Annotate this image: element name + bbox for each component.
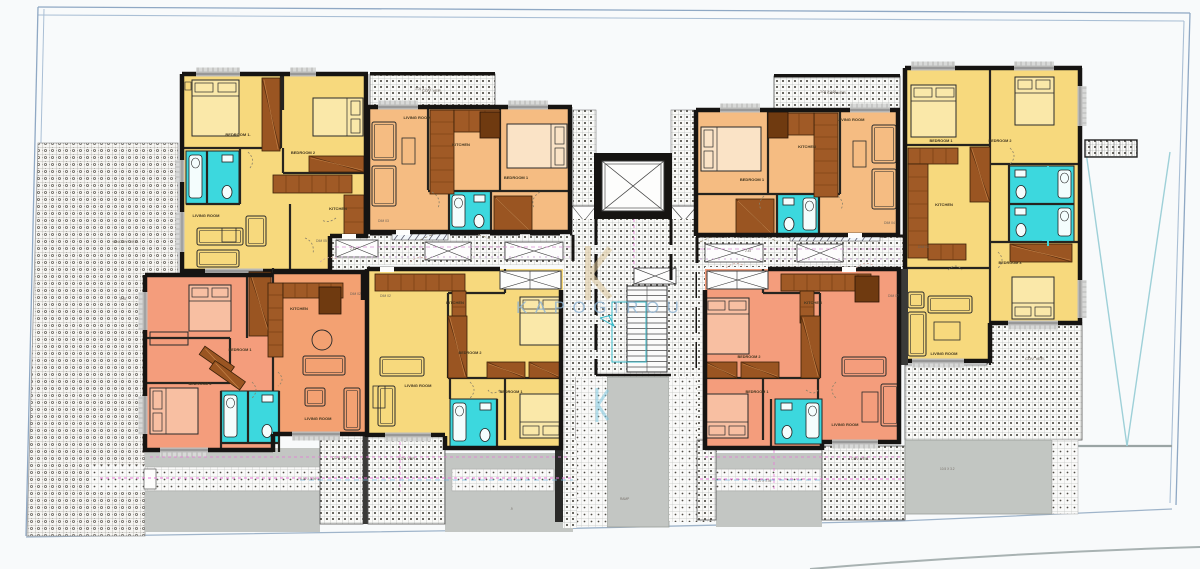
svg-text:LIVING ROOM: LIVING ROOM [404, 115, 432, 120]
svg-text:BEDROOM 1: BEDROOM 1 [930, 139, 953, 143]
svg-text:2.45: 2.45 [350, 247, 356, 251]
svg-text:BEDROOM 1: BEDROOM 1 [229, 348, 252, 352]
svg-text:KITCHEN: KITCHEN [798, 144, 816, 149]
svg-text:2.45: 2.45 [745, 249, 751, 253]
svg-text:KITCHEN: KITCHEN [290, 306, 308, 311]
svg-text:LIVING ROOM: LIVING ROOM [838, 117, 866, 122]
svg-text:BEDROOM 1: BEDROOM 1 [500, 390, 523, 394]
svg-text:LIVING ROOM: LIVING ROOM [405, 383, 433, 388]
svg-text:BEDROOM 3: BEDROOM 3 [999, 261, 1022, 265]
svg-text:KITCHEN: KITCHEN [329, 206, 347, 211]
svg-text:BEDROOM 1: BEDROOM 1 [746, 390, 769, 394]
svg-text:COV. VER.: COV. VER. [332, 456, 350, 460]
svg-text:UNCOV. VER.: UNCOV. VER. [113, 239, 139, 244]
svg-text:DIM 01: DIM 01 [918, 245, 929, 249]
svg-text:LIVING ROOM: LIVING ROOM [832, 422, 860, 427]
svg-text:COV. VER.: COV. VER. [1025, 356, 1045, 361]
svg-text:COV. VER.: COV. VER. [398, 457, 416, 461]
svg-text:3.05 X 1.20: 3.05 X 1.20 [820, 90, 837, 94]
svg-text:3.05 X 1.20: 3.05 X 1.20 [415, 87, 432, 91]
svg-text:BEDROOM 2: BEDROOM 2 [459, 351, 482, 355]
svg-text:BEDROOM 2: BEDROOM 2 [738, 355, 761, 359]
svg-text:LIVING ROOM: LIVING ROOM [193, 213, 221, 218]
svg-text:BEDROOM 2: BEDROOM 2 [291, 150, 316, 155]
svg-text:BEDROOM 2: BEDROOM 2 [189, 382, 212, 386]
svg-text:BEDROOM 2: BEDROOM 2 [989, 139, 1012, 143]
svg-text:RAMP: RAMP [620, 497, 629, 501]
svg-text:4.10 X 1.95: 4.10 X 1.95 [755, 479, 772, 483]
svg-text:LIVING ROOM: LIVING ROOM [931, 351, 959, 356]
svg-text:DIM 05: DIM 05 [316, 239, 327, 243]
svg-text:KITCHEN: KITCHEN [935, 202, 953, 207]
svg-text:DIM 03: DIM 03 [378, 219, 389, 223]
svg-text:DIM 02: DIM 02 [350, 292, 361, 296]
svg-text:4.10 X 1.95: 4.10 X 1.95 [300, 477, 317, 481]
svg-text:KAPOGIROU: KAPOGIROU [516, 298, 686, 317]
svg-text:KITCHEN: KITCHEN [452, 142, 470, 147]
svg-text:DIM 02: DIM 02 [380, 294, 391, 298]
svg-text:10.5 X 3.2: 10.5 X 3.2 [940, 467, 955, 471]
svg-text:LIVING ROOM: LIVING ROOM [305, 416, 333, 421]
svg-text:DIM 04: DIM 04 [884, 221, 895, 225]
svg-text:BEDROOM 1.: BEDROOM 1. [225, 132, 250, 137]
svg-text:8.35: 8.35 [120, 297, 126, 301]
svg-text:BEDROOM 1: BEDROOM 1 [504, 175, 529, 180]
svg-text:BEDROOM 1: BEDROOM 1 [740, 177, 765, 182]
svg-text:COV. VER.: COV. VER. [851, 457, 869, 461]
svg-text:KITCHEN: KITCHEN [446, 300, 464, 305]
svg-text:DIM 07: DIM 07 [888, 294, 899, 298]
svg-text:KITCHEN: KITCHEN [804, 300, 822, 305]
